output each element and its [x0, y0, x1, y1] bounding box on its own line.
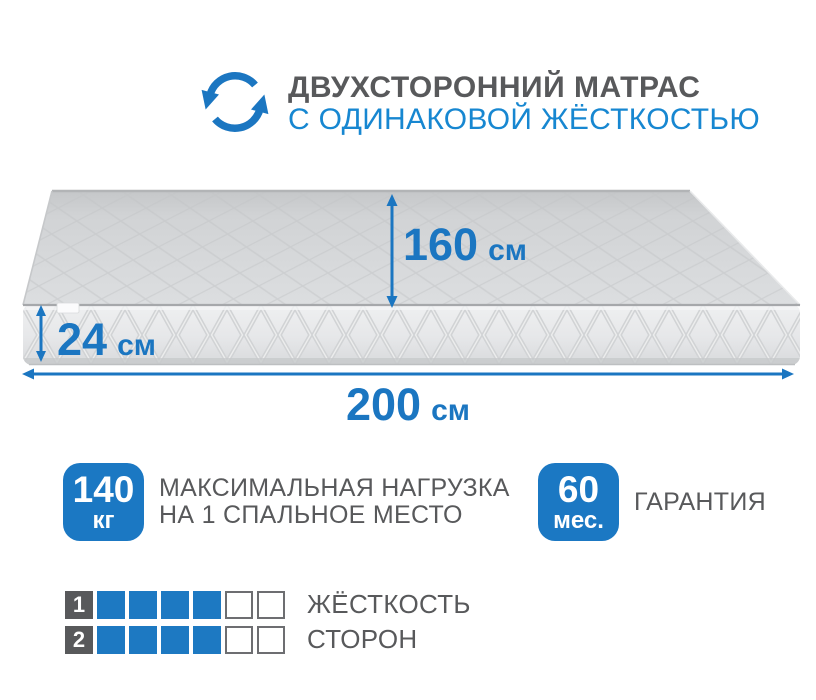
dimension-width-label: 160 см: [403, 222, 527, 267]
hardness-cell-empty: [225, 591, 253, 619]
hardness-row-2-number: 2: [65, 626, 93, 654]
max-load-badge: 140 кг: [63, 463, 144, 541]
max-load-label: МАКСИМАЛЬНАЯ НАГРУЗКА НА 1 СПАЛЬНОЕ МЕСТ…: [159, 475, 510, 529]
dimension-length-label: 200 см: [0, 382, 816, 427]
feature-max-load: 140 кг МАКСИМАЛЬНАЯ НАГРУЗКА НА 1 СПАЛЬН…: [63, 463, 510, 541]
max-load-unit: кг: [92, 509, 114, 533]
hardness-cell-filled: [129, 591, 157, 619]
hardness-cell-empty: [225, 626, 253, 654]
hardness-cell-filled: [193, 626, 221, 654]
hardness-cell-empty: [257, 626, 285, 654]
hardness-cell-filled: [161, 626, 189, 654]
thickness-unit: см: [117, 331, 156, 361]
hardness-cell-empty: [257, 591, 285, 619]
length-unit: см: [431, 396, 470, 426]
warranty-value: 60: [558, 471, 599, 508]
hardness-cell-filled: [161, 591, 189, 619]
max-load-label-line2: НА 1 СПАЛЬНОЕ МЕСТО: [159, 502, 510, 529]
dimension-thickness-label: 24 см: [57, 317, 156, 362]
hardness-cell-filled: [97, 591, 125, 619]
hardness-row-1-number: 1: [65, 591, 93, 619]
thickness-value: 24: [57, 317, 107, 362]
feature-warranty: 60 мес. ГАРАНТИЯ: [538, 463, 766, 541]
warranty-badge: 60 мес.: [538, 463, 619, 541]
mattress-infographic: ДВУХСТОРОННИЙ МАТРАС С ОДИНАКОВОЙ ЖЁСТКО…: [0, 0, 816, 700]
mattress-tag: [57, 303, 79, 313]
max-load-label-line1: МАКСИМАЛЬНАЯ НАГРУЗКА: [159, 475, 510, 502]
hardness-ratings: 1 ЖЁСТКОСТЬ 2 СТОРОН: [65, 589, 471, 655]
max-load-value: 140: [73, 471, 135, 508]
hardness-cell-filled: [97, 626, 125, 654]
hardness-row-1: 1 ЖЁСТКОСТЬ: [65, 589, 471, 620]
warranty-label: ГАРАНТИЯ: [634, 489, 766, 516]
length-value: 200: [346, 382, 421, 427]
hardness-row-2-cells: [97, 626, 285, 654]
warranty-unit: мес.: [553, 509, 604, 533]
hardness-cell-filled: [193, 591, 221, 619]
hardness-row-1-cells: [97, 591, 285, 619]
width-unit: см: [488, 236, 527, 266]
hardness-label-line2: СТОРОН: [307, 624, 417, 655]
warranty-label-line1: ГАРАНТИЯ: [634, 489, 766, 516]
hardness-cell-filled: [129, 626, 157, 654]
hardness-label-line1: ЖЁСТКОСТЬ: [307, 589, 471, 620]
width-value: 160: [403, 222, 478, 267]
hardness-row-2: 2 СТОРОН: [65, 624, 471, 655]
